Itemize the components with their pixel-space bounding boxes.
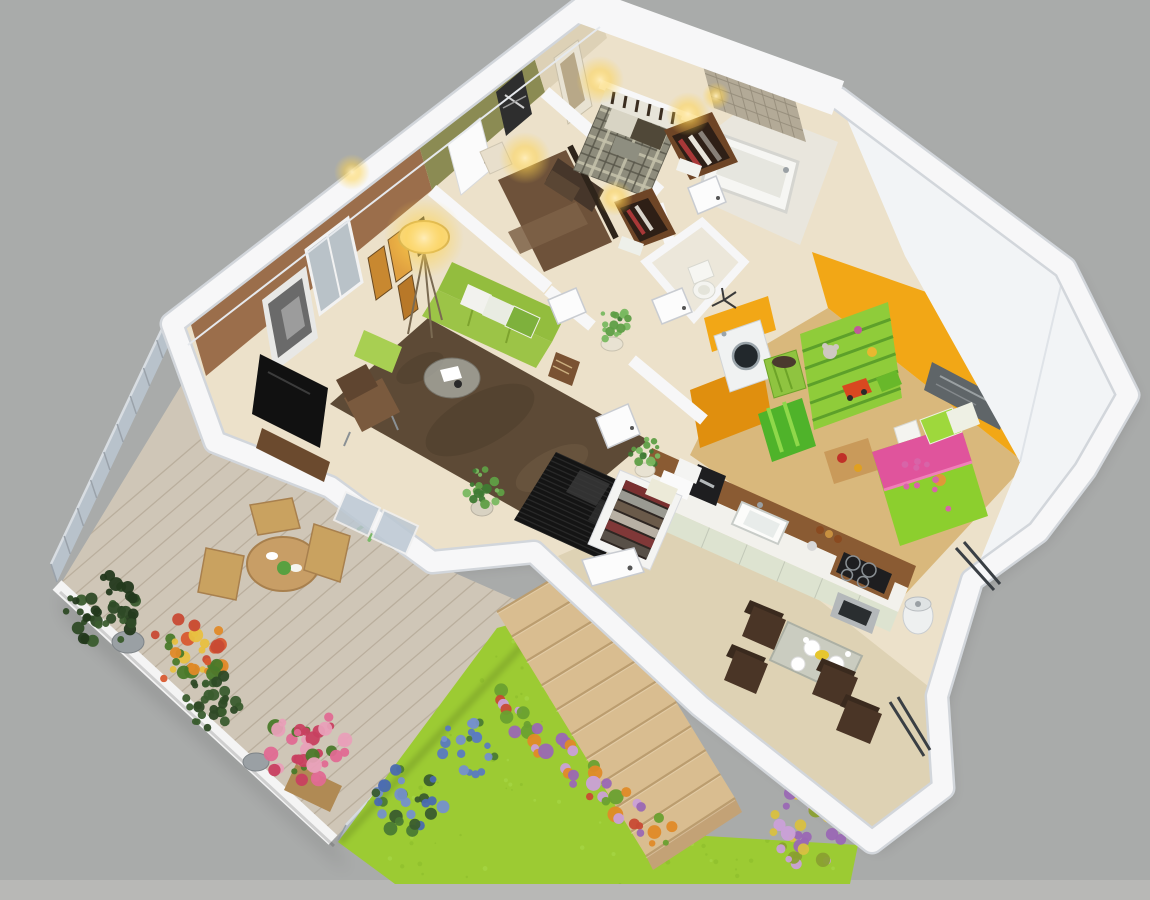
lawn-flowers-blue-a	[395, 817, 404, 826]
hedge-planter-b	[204, 724, 212, 732]
lawn-speckle	[511, 789, 513, 791]
hedge-planter-b	[182, 694, 190, 702]
lawn-speckle	[533, 799, 536, 802]
lawn-flowers-blue-a	[384, 822, 398, 836]
lawn-speckle	[435, 842, 437, 844]
lawn-speckle	[437, 781, 439, 783]
lawn-flowers-purple	[771, 810, 780, 819]
hedge-planter-a	[117, 636, 124, 643]
terrace-flowers-pink	[330, 750, 342, 762]
hedge-planter-a	[122, 581, 134, 593]
hedge-planter-b	[219, 686, 230, 697]
terrace-flowers-orange	[170, 666, 177, 673]
lawn-speckle	[709, 859, 712, 862]
lawn-speckle	[736, 858, 738, 860]
lawn-flowers-purple	[816, 853, 830, 867]
terrace-flowers-pink	[324, 713, 333, 722]
teddy-ear	[833, 344, 839, 350]
basket-contents	[772, 356, 796, 368]
lawn-flowers-blue-a	[374, 798, 382, 806]
hedge-planter-a	[78, 633, 89, 644]
hall-plant-b	[655, 453, 661, 459]
lawn-flowers-purple	[795, 819, 807, 831]
flower	[568, 770, 579, 781]
floor-toy	[837, 453, 847, 463]
flower	[532, 723, 543, 734]
floor-toy	[854, 464, 862, 472]
lawn-speckle	[541, 721, 543, 723]
hall-plant-b	[628, 452, 633, 457]
duvet-dot	[914, 482, 920, 488]
terrace-flowers-orange	[172, 613, 184, 625]
hedge-planter-b	[186, 703, 193, 710]
duvet-dot	[913, 465, 919, 471]
lawn-speckle	[557, 800, 561, 804]
lawn-speckle	[483, 866, 488, 871]
terrace-flowers-orange	[160, 675, 167, 682]
terrace-flowers-pink	[293, 754, 303, 764]
lawn-speckle	[480, 678, 484, 682]
lawn-speckle	[515, 695, 518, 698]
lawn-flowers-purple	[798, 843, 809, 854]
door-handle	[716, 196, 720, 200]
floor-plan-svg	[0, 0, 1150, 900]
washer-door	[733, 343, 759, 369]
hall-plant-a	[624, 315, 631, 322]
lawn-flowers-blue-b	[468, 718, 479, 729]
terrace-flowers-orange	[172, 658, 180, 666]
living-plant	[463, 489, 472, 498]
lawn-speckle	[449, 734, 451, 736]
lawn-speckle	[409, 841, 413, 845]
lawn-speckle	[421, 873, 424, 876]
hedge-planter-b	[222, 695, 229, 702]
flower	[500, 710, 513, 723]
terrace-flowers-orange	[170, 647, 181, 658]
lawn-speckle	[388, 856, 392, 860]
terrace-flowers-pink	[318, 722, 332, 736]
hedge-planter-a	[91, 605, 101, 615]
flower	[586, 793, 593, 800]
hall-plant-b	[655, 445, 659, 449]
lawn-flowers-blue-a	[390, 764, 402, 776]
hedge-planter-b	[192, 682, 198, 688]
lawn-speckle	[749, 858, 753, 862]
hedge-planter-a	[67, 595, 73, 601]
cup	[803, 637, 809, 643]
hall-plant-a	[602, 321, 608, 327]
cup	[845, 651, 851, 657]
door-handle	[628, 566, 633, 571]
living-plant	[491, 497, 499, 505]
duvet-dot	[903, 483, 909, 489]
flower	[654, 813, 664, 823]
flower	[636, 802, 646, 812]
lawn-flowers-blue-b	[466, 736, 472, 742]
hall-plant-b	[644, 437, 649, 442]
terrace-flowers-orange	[172, 638, 178, 644]
lawn-speckle	[701, 844, 705, 848]
lawn-speckle	[466, 876, 468, 878]
terrace-flowers-pink	[302, 727, 310, 735]
light-glow	[576, 56, 624, 104]
lawn-flowers-purple	[801, 832, 811, 842]
lawn-speckle	[417, 862, 422, 867]
hall-plant-b	[651, 438, 657, 444]
lawn-speckle	[520, 783, 523, 786]
hedge-planter-b	[230, 706, 238, 714]
flower	[648, 825, 662, 839]
light-glow	[334, 154, 370, 190]
lawn-speckle	[508, 782, 512, 786]
hedge-planter-a	[108, 601, 120, 613]
hall-plant-a	[601, 311, 605, 315]
lawn-flowers-blue-b	[457, 750, 465, 758]
terrace-flowers-pink	[291, 768, 297, 774]
hedge-planter-a	[95, 621, 103, 629]
table-cup	[290, 564, 302, 572]
door-handle	[630, 426, 634, 430]
hall-plant-b	[649, 449, 654, 454]
washer-knob	[722, 332, 727, 337]
hedge-planter-a	[85, 593, 97, 605]
toilet-seat	[698, 285, 710, 295]
terrace-flowers-pink	[321, 760, 328, 767]
hall-plant-a	[601, 335, 608, 342]
duvet-dot	[945, 506, 951, 512]
lawn-speckle	[459, 834, 461, 836]
hall-plant-b	[643, 442, 650, 449]
hedge-planter-b	[220, 716, 230, 726]
spice-jar	[834, 535, 842, 543]
lawn-speckle	[735, 868, 737, 870]
lawn-flowers-blue-b	[472, 770, 480, 778]
lawn-flowers-purple	[781, 826, 796, 841]
hedge-planter-a	[109, 577, 123, 591]
hedge-planter-b	[204, 690, 215, 701]
lawn-flowers-blue-a	[421, 799, 430, 808]
terrace-flowers-pink	[338, 733, 352, 747]
lawn-speckle	[705, 853, 707, 855]
terrace-flowers-orange	[210, 639, 224, 653]
lawn-flowers-blue-b	[459, 765, 469, 775]
lawn-speckle	[524, 696, 529, 701]
lawn-flowers-blue-a	[377, 809, 387, 819]
flower	[663, 840, 669, 846]
lawn-flowers-blue-b	[441, 736, 447, 742]
duvet-dot	[932, 476, 939, 483]
duvet-dot	[902, 461, 909, 468]
hedge-planter-b	[209, 705, 218, 714]
terrace-flowers-orange	[188, 619, 200, 631]
lawn-flowers-purple	[783, 803, 790, 810]
hedge-planter-a	[72, 622, 85, 635]
lawn-speckle	[735, 874, 739, 878]
lawn-speckle	[521, 666, 524, 669]
lawn-speckle	[495, 656, 497, 658]
flower	[567, 745, 578, 756]
spice-jar	[825, 530, 833, 538]
living-plant	[480, 499, 490, 509]
flower	[508, 726, 521, 739]
hedge-planter-b	[194, 718, 201, 725]
lawn-flowers-purple	[770, 828, 778, 836]
tub-faucet	[783, 167, 789, 173]
lawn-flowers-blue-b	[484, 742, 491, 749]
light-glow	[499, 132, 551, 184]
hedge-planter-a	[126, 618, 136, 628]
teddy-ear	[822, 343, 828, 349]
flower	[517, 706, 530, 719]
terrace-flowers-pink	[268, 764, 280, 776]
hall-plant-b	[646, 457, 656, 467]
flower	[636, 822, 643, 829]
hedge-planter-b	[218, 671, 229, 682]
hall-plant-b	[640, 452, 647, 459]
lawn-speckle	[418, 785, 422, 789]
terrace-flowers-orange	[188, 664, 199, 675]
kettle	[807, 541, 817, 551]
spice-jar	[816, 526, 824, 534]
hedge-planter-a	[83, 613, 91, 621]
lawn-speckle	[504, 778, 508, 782]
lawn-speckle	[400, 864, 404, 868]
living-plant	[478, 473, 482, 477]
lawn-flowers-blue-a	[378, 779, 391, 792]
terrace-flowers-orange	[151, 630, 160, 639]
duvet-dot	[932, 487, 938, 493]
living-plant	[495, 488, 499, 492]
living-plant	[475, 482, 482, 489]
terrace-flowers-pink	[264, 747, 279, 762]
hedge-planter-a	[106, 589, 113, 596]
plate	[791, 657, 805, 671]
lawn-speckle	[713, 859, 718, 864]
outdoor-chair	[250, 498, 300, 535]
hall-plant-a	[605, 327, 615, 337]
lawn-flowers-purple	[785, 856, 792, 863]
hedge-planter-a	[127, 593, 137, 603]
lawn-flowers-blue-b	[445, 725, 451, 731]
duvet-dot	[914, 458, 921, 465]
lawn-flowers-blue-a	[430, 776, 437, 783]
sink-faucet	[757, 502, 763, 508]
living-plant	[472, 469, 476, 473]
terrace-flowers-pink	[311, 771, 326, 786]
living-plant	[470, 482, 475, 487]
table-item	[454, 380, 462, 388]
lawn-speckle	[611, 852, 615, 856]
flower	[601, 778, 611, 788]
flower	[538, 744, 554, 760]
lawn-speckle	[505, 787, 507, 789]
flower	[586, 776, 601, 791]
flower	[613, 813, 624, 824]
terrace-flowers-pink	[294, 729, 301, 736]
table-plant	[277, 561, 291, 575]
hall-plant-a	[616, 323, 626, 333]
flower	[649, 840, 656, 847]
lawn-flowers-blue-a	[415, 796, 421, 802]
lawn-flowers-blue-a	[406, 810, 415, 819]
hedge-planter-b	[230, 696, 241, 707]
hedge-planter-a	[117, 611, 125, 619]
terrace-flowers-orange	[214, 626, 223, 635]
living-plant	[490, 477, 500, 487]
light-glow	[384, 198, 464, 278]
lawn-flowers-purple	[776, 844, 785, 853]
lawn-speckle	[599, 821, 602, 824]
hedge-planter-b	[202, 680, 210, 688]
table-cup	[266, 552, 278, 560]
door-handle	[682, 306, 686, 310]
flower	[637, 829, 645, 837]
lawn-flowers-blue-a	[394, 788, 407, 801]
flower	[621, 787, 631, 797]
floor-plan-render	[0, 0, 1150, 900]
hedge-planter-b	[198, 711, 206, 719]
hall-plant-a	[612, 312, 619, 319]
hedge-planter-a	[128, 608, 139, 619]
lawn-speckle	[520, 693, 522, 695]
hedge-planter-a	[102, 620, 109, 627]
duvet-dot	[924, 462, 930, 468]
flower	[569, 780, 577, 788]
terrace-flowers-pink	[296, 774, 308, 786]
shelf-toy	[867, 347, 877, 357]
flower	[666, 821, 677, 832]
hedge-planter-a	[63, 608, 70, 615]
outdoor-chair	[198, 548, 244, 600]
lawn-flowers-blue-a	[398, 777, 405, 784]
lawn-flowers-blue-b	[484, 753, 492, 761]
terrace-flowers-pink	[271, 722, 285, 736]
shelf-toy	[854, 326, 862, 334]
toy-car-wheel	[861, 389, 867, 395]
hedge-planter-b	[218, 707, 227, 716]
living-plant	[482, 466, 489, 473]
lawn-flowers-blue-a	[409, 819, 420, 830]
lawn-flowers-blue-a	[437, 800, 450, 813]
terrace-flowers-orange	[204, 658, 211, 665]
lawn-speckle	[507, 759, 510, 762]
lawn-flowers-blue-b	[456, 735, 466, 745]
lawn-flowers-blue-b	[437, 748, 448, 759]
lawn-flowers-purple	[826, 828, 838, 840]
hedge-planter-a	[77, 608, 84, 615]
terrace-flowers-orange	[177, 666, 190, 679]
flower	[608, 789, 623, 804]
lawn-speckle	[580, 845, 585, 850]
lawn-flowers-blue-b	[468, 729, 475, 736]
lawn-flowers-blue-a	[372, 788, 381, 797]
light-glow	[597, 180, 633, 216]
terrace-flowers-orange	[199, 647, 206, 654]
terrace-flowers-pink	[306, 757, 322, 773]
lawn-flowers-blue-a	[425, 808, 437, 820]
bin-knob	[915, 601, 921, 607]
lawn-speckle	[831, 867, 835, 871]
light-glow	[702, 82, 730, 110]
hall-plant-b	[631, 447, 636, 452]
toy-car-wheel	[847, 395, 853, 401]
living-plant	[474, 488, 484, 498]
